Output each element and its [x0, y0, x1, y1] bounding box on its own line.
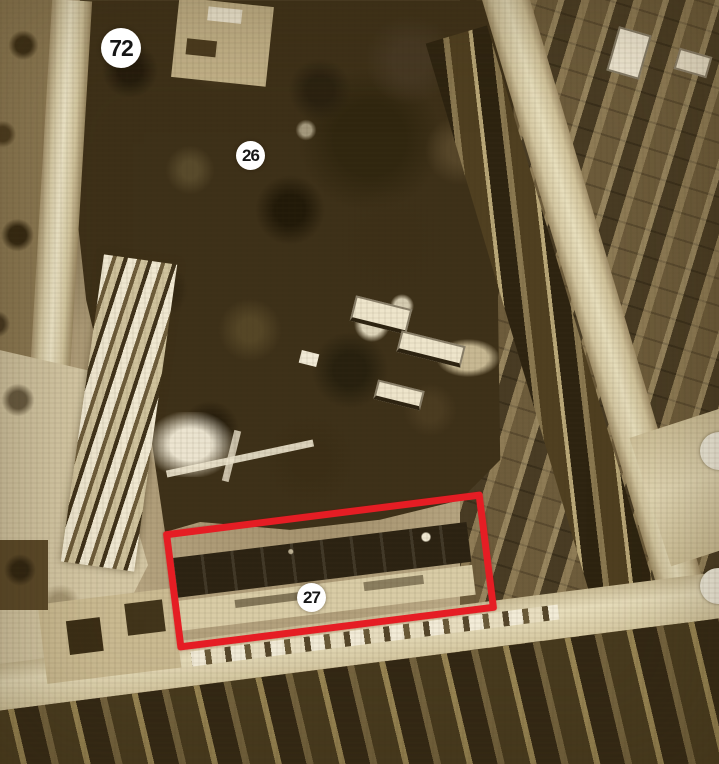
marker-72: 72 [101, 28, 141, 68]
marker-27: 27 [297, 583, 326, 612]
marker-26: 26 [236, 141, 265, 170]
building-top-left [171, 0, 274, 87]
dark-block-left-edge [0, 540, 48, 610]
aerial-photo-figure: 72 26 27 [0, 0, 719, 764]
courtyard-block-southwest [38, 588, 182, 684]
